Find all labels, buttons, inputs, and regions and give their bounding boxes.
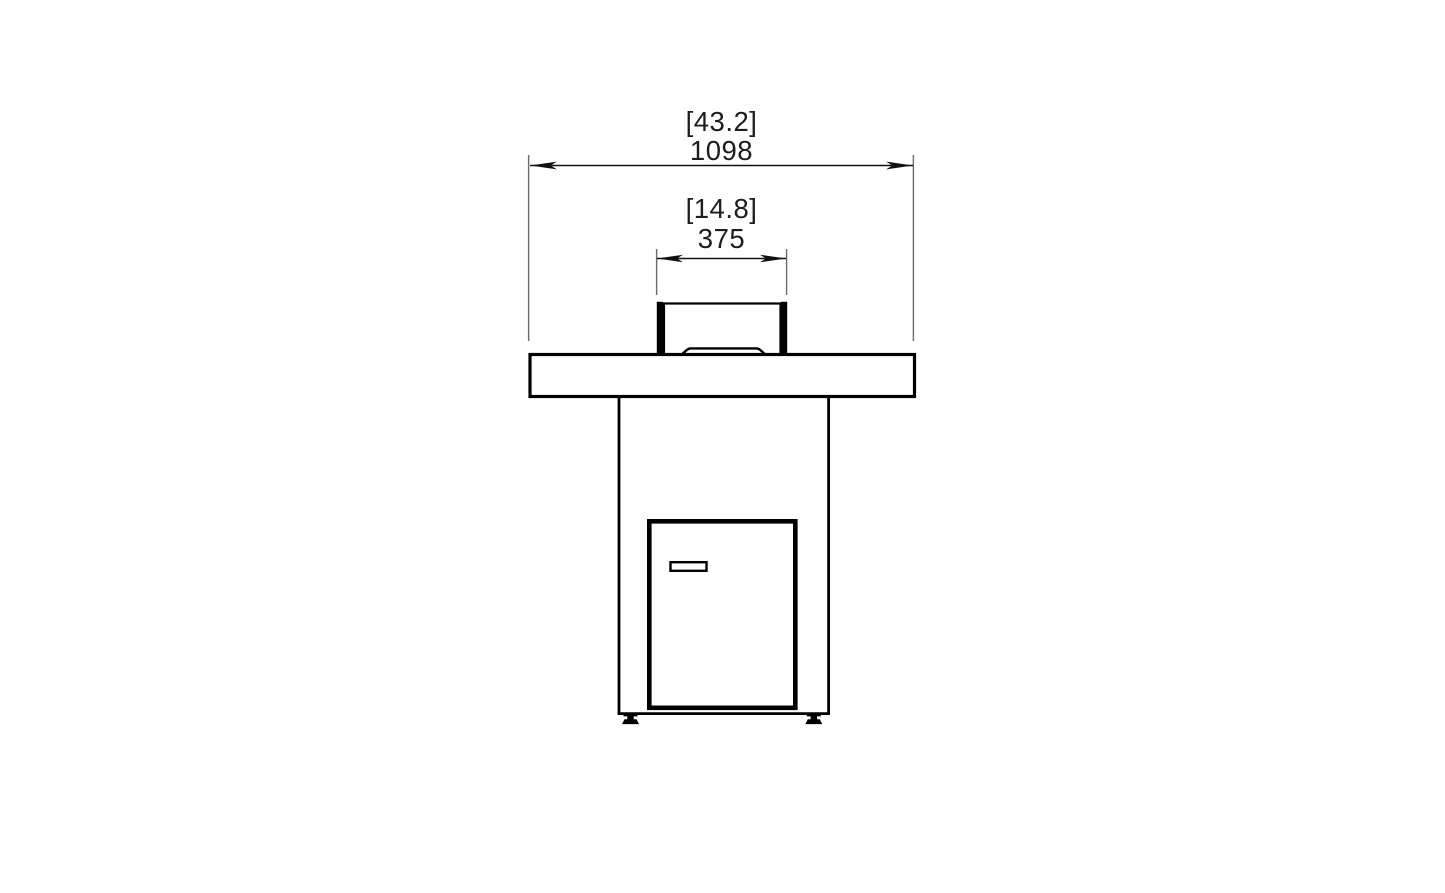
burner-width-inches-label: [14.8] (521, 193, 922, 224)
foot-left (622, 714, 639, 725)
foot-right (805, 714, 822, 725)
burner-width-mm-label: 375 (521, 223, 922, 254)
fire-screen-clamp-right (781, 302, 787, 356)
overall-width-inches-label: [43.2] (521, 106, 922, 137)
tabletop (530, 355, 915, 397)
fire-screen-clamp-left (657, 302, 663, 356)
access-door (649, 521, 795, 708)
technical-drawing-canvas: [43.2] 1098 [14.8] 375 (0, 0, 1445, 893)
door-handle (671, 562, 707, 571)
overall-width-mm-label: 1098 (521, 135, 922, 166)
